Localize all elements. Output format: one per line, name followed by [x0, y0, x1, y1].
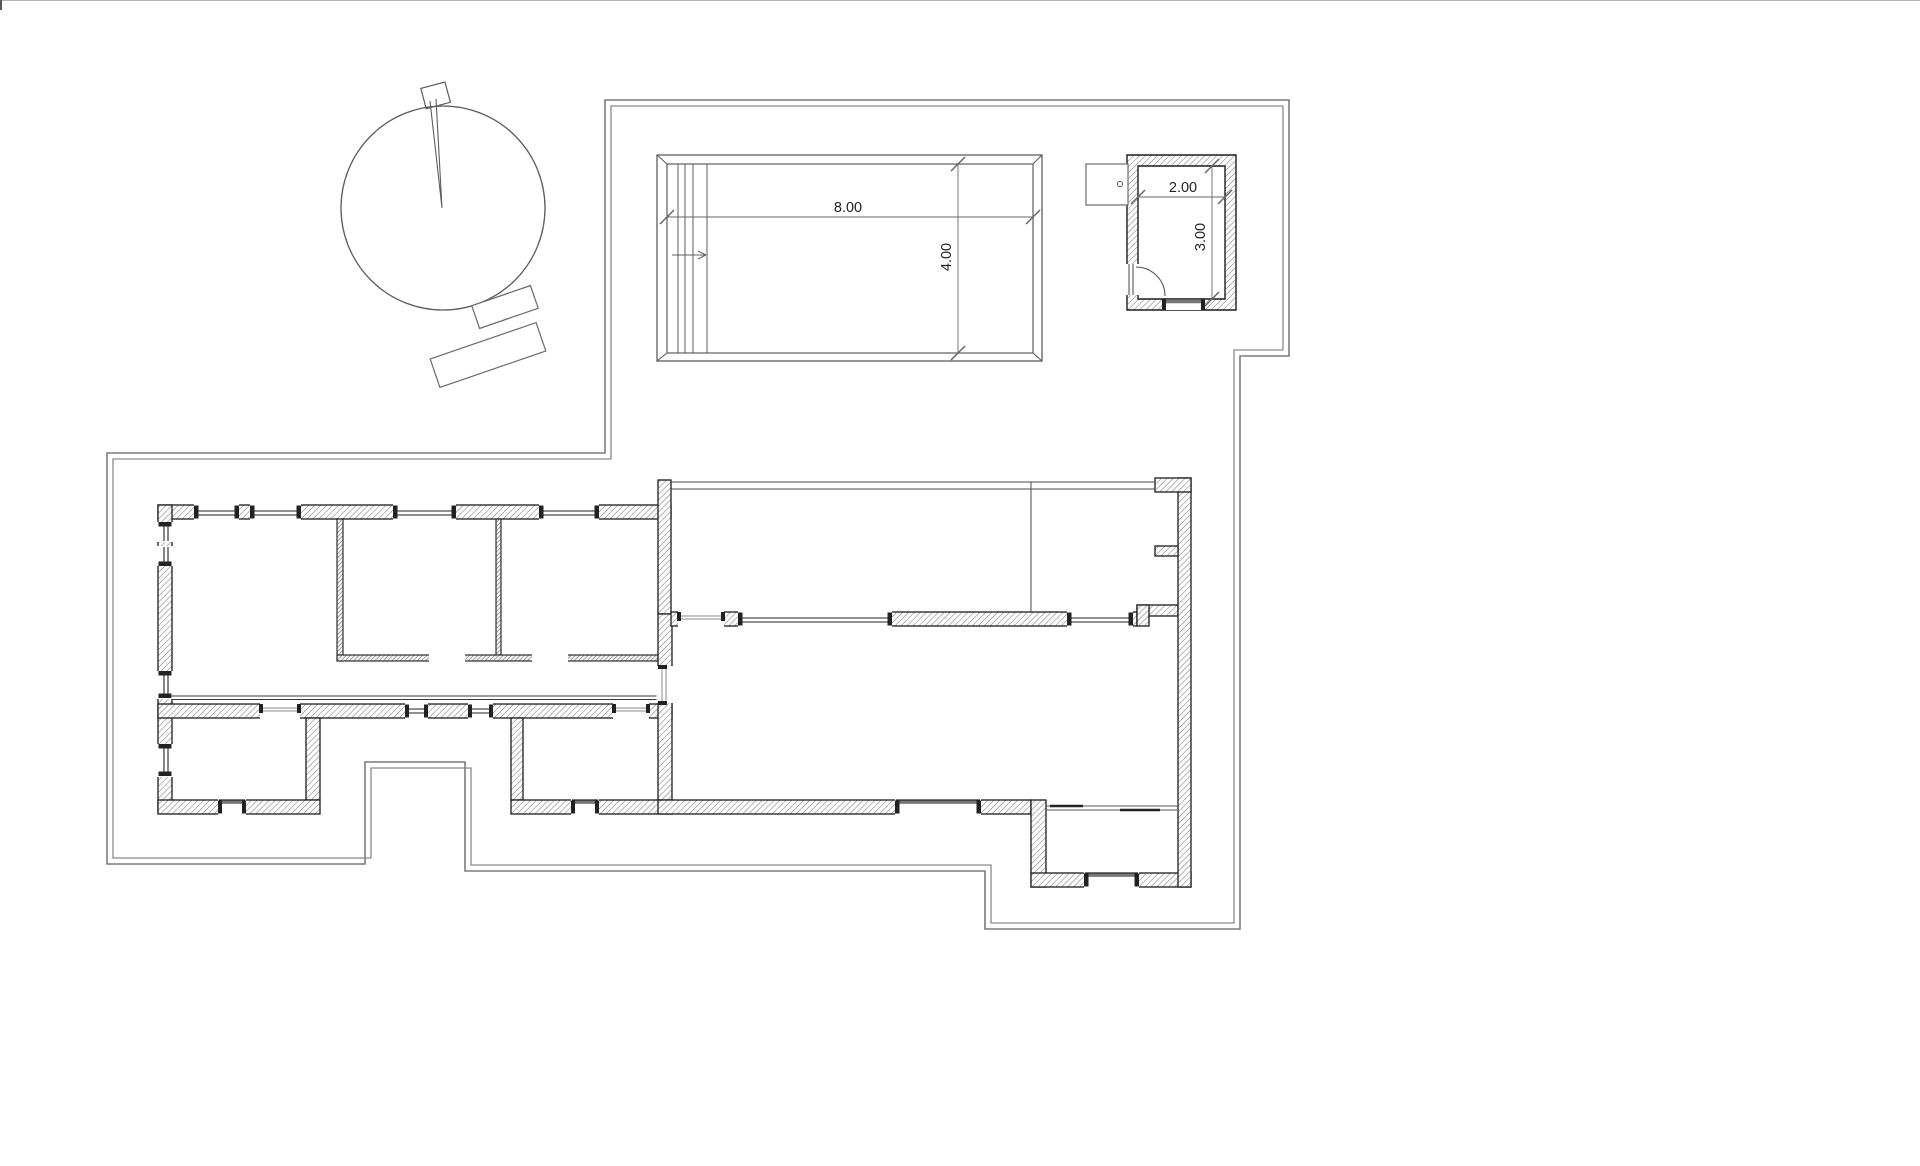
svg-text:8.00: 8.00 [834, 200, 862, 216]
svg-text:2.00: 2.00 [1169, 180, 1197, 196]
svg-text:4.00: 4.00 [939, 243, 955, 271]
svg-text:3.00: 3.00 [1193, 223, 1209, 251]
